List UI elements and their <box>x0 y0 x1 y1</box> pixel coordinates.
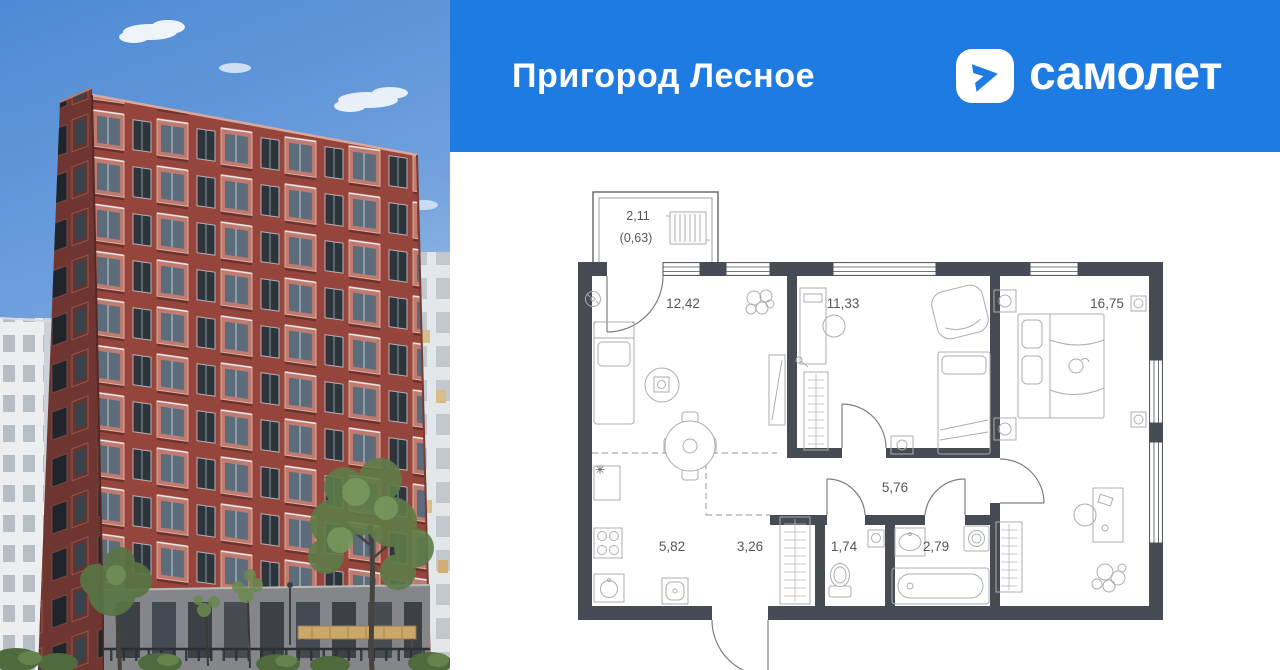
stove-icon <box>594 528 622 558</box>
dining-table <box>664 412 716 480</box>
area-label-living: 12,42 <box>666 296 700 311</box>
windows <box>663 263 1162 543</box>
hall-wardrobe <box>780 517 810 604</box>
balcony: 2,11 (0,63) <box>593 192 718 262</box>
desk-bedroom2 <box>1074 488 1123 542</box>
bathroom-door <box>925 479 965 515</box>
balcony-door <box>607 276 663 332</box>
window-living-2 <box>726 263 770 276</box>
samolet-logo: самолет <box>956 49 1222 103</box>
banner: Пригород Лесное самолет <box>450 0 1280 152</box>
cat-on-bed <box>1069 359 1083 373</box>
sofa-bed <box>594 322 634 424</box>
sconce-top <box>1131 296 1146 311</box>
plant-living <box>746 290 774 314</box>
plant-bedroom2 <box>1092 564 1126 592</box>
kitchen-furniture: ✳ <box>594 463 688 604</box>
samolet-wordmark: самолет <box>1029 50 1222 102</box>
floor-plan: 2,11 (0,63) <box>578 190 1168 670</box>
balcony-area-label: 2,11 <box>626 209 649 223</box>
hallway-furniture <box>780 517 810 604</box>
area-label-bathroom: 2,79 <box>923 539 949 554</box>
balcony-area-coef-label: (0,63) <box>620 231 653 245</box>
wc-sink <box>868 530 884 547</box>
window-bedroom1 <box>833 263 936 276</box>
area-label-kitchen: 5,82 <box>659 539 685 554</box>
bedroom2-door <box>1000 459 1044 503</box>
wardrobe-bedroom1 <box>804 372 828 450</box>
bedroom2-furniture <box>994 290 1146 592</box>
area-label-wc: 1,74 <box>831 539 858 554</box>
samolet-logo-icon <box>956 49 1014 103</box>
area-label-bedroom1: 11,33 <box>827 296 860 311</box>
building-photo <box>0 0 450 670</box>
entrance-door <box>712 620 768 670</box>
bedroom1-furniture <box>796 282 991 454</box>
listing-card: Пригород Лесное самолет <box>0 0 1280 670</box>
rug-table <box>645 368 679 402</box>
oven-icon <box>662 578 688 604</box>
wc-door <box>827 479 865 515</box>
area-label-hallway: 3,26 <box>737 539 763 554</box>
living-room-furniture <box>586 290 786 480</box>
project-title: Пригород Лесное <box>512 57 815 96</box>
mirror-shelf <box>769 355 785 425</box>
washing-machine-icon <box>964 526 989 551</box>
toilet-icon <box>829 564 851 598</box>
key-icon <box>796 357 808 367</box>
bathroom-furniture <box>892 526 989 604</box>
window-bedroom2-top <box>1030 263 1078 276</box>
area-label-corridor: 5,76 <box>882 480 908 495</box>
vent-symbol: ✳ <box>595 463 606 477</box>
floor-plan-area: 2,11 (0,63) <box>450 152 1280 670</box>
bed-bedroom1 <box>938 352 990 454</box>
bedroom1-door <box>842 404 886 448</box>
kitchen-sink <box>594 574 624 602</box>
bath-sink <box>895 528 925 556</box>
radiator-icon <box>666 212 710 244</box>
double-bed <box>1018 314 1104 418</box>
window-bedroom2-right-lower <box>1150 442 1163 543</box>
window-bedroom2-right-upper <box>1150 360 1163 423</box>
bathtub-icon <box>892 568 989 604</box>
armchair-bedroom1 <box>929 282 991 341</box>
window-living <box>663 263 700 276</box>
area-label-bedroom2: 16,75 <box>1090 296 1124 311</box>
sconce-bottom <box>1131 412 1146 427</box>
